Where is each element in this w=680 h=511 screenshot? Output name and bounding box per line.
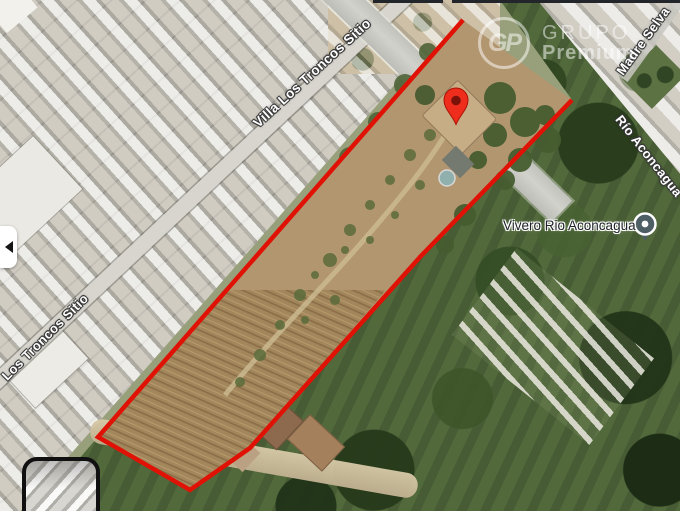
- thumbnail-preview[interactable]: [22, 457, 100, 511]
- poi-marker-icon[interactable]: [635, 214, 656, 242]
- poi-label-vivero[interactable]: Vivero Rio Aconcagua: [503, 218, 636, 233]
- property-parcel: [98, 20, 572, 490]
- map-overlay: [0, 0, 680, 511]
- left-arrow-icon: [5, 241, 13, 253]
- map-viewport: Villa Los Troncos Sitio Los Troncos Siti…: [0, 0, 680, 511]
- prev-image-button[interactable]: [0, 226, 17, 268]
